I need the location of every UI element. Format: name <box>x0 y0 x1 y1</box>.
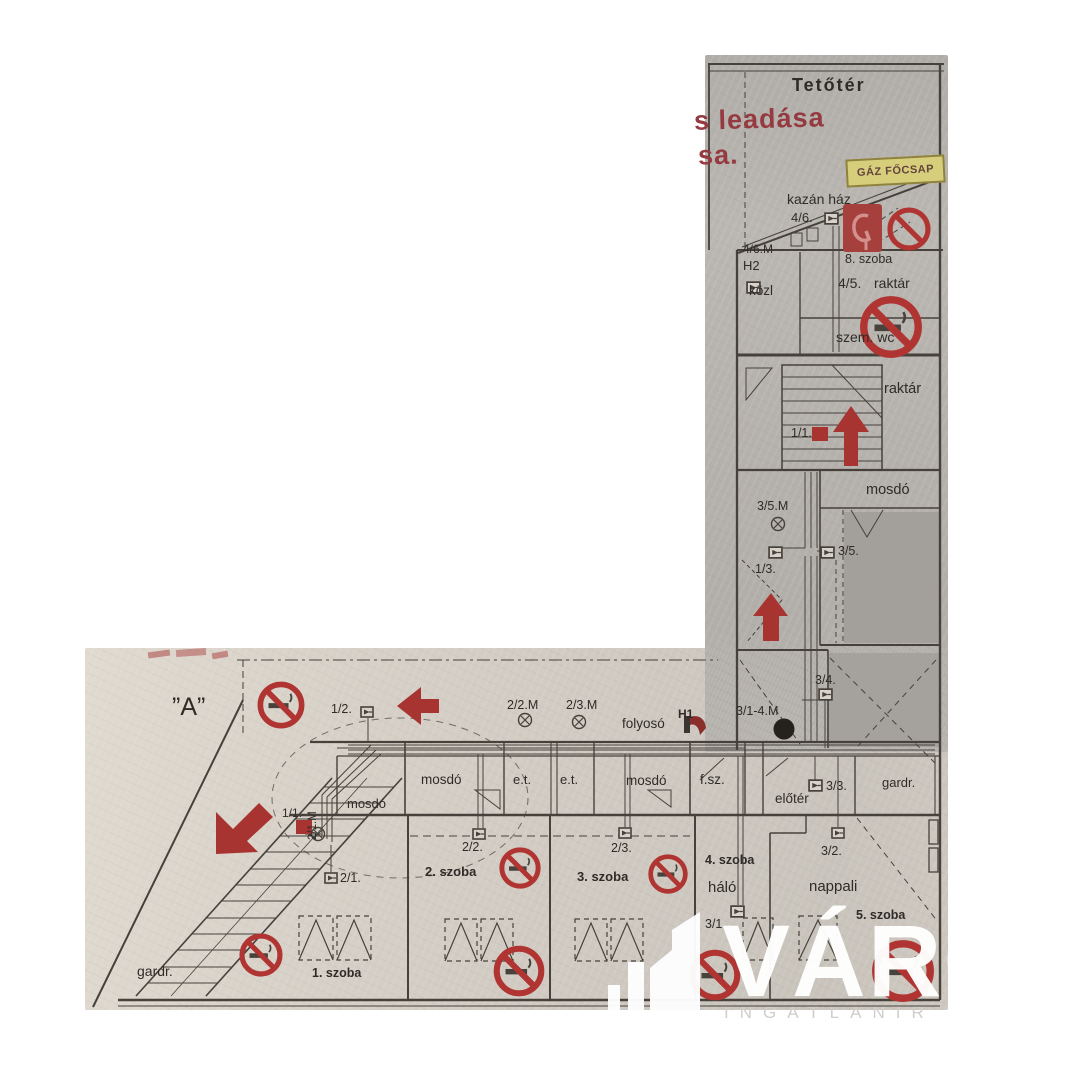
attic-stairs <box>782 365 882 470</box>
valve-icon <box>825 213 838 224</box>
room-label-washroom-attic: mosdó <box>866 483 910 498</box>
valve-label-23: 2/3. <box>611 842 632 855</box>
room-label-washroom-a: mosdó <box>347 797 386 810</box>
room-label-2: 2. szoba <box>425 865 476 878</box>
stamp-fragment <box>148 649 171 658</box>
no-smoking-icon <box>242 936 280 974</box>
stamp-text-line2: sa. <box>698 139 739 171</box>
no-smoking-icon <box>864 300 918 354</box>
label-h2: H2 <box>743 259 760 272</box>
room-label-washroom-b: mosdó <box>421 773 462 787</box>
circle-x-icon <box>573 716 586 729</box>
no-smoking-icon <box>260 684 301 725</box>
valve-icon <box>809 780 822 791</box>
room-label-boiler: kazán ház <box>787 192 851 206</box>
no-smoking-icon <box>502 850 538 886</box>
valve-label-11-attic: 1/1. <box>791 427 812 440</box>
stamp-fragment <box>176 648 206 657</box>
circle-x-icon <box>772 518 785 531</box>
room-label-1: 1. szoba <box>312 967 361 980</box>
valve-label-22: 2/2. <box>462 841 483 854</box>
room-label-wardrobe-r: gardr. <box>882 776 915 789</box>
gas-main-highlight: GÁZ FŐCSAP <box>845 154 945 187</box>
valve-label-21m: 2/1.M <box>308 811 320 840</box>
valve-label-46m: 4/6.M <box>743 243 773 255</box>
arrow-down-left-icon <box>216 803 273 854</box>
valve-icon <box>325 873 337 883</box>
valve-label-22m: 2/2.M <box>507 699 538 712</box>
room-label-storage-b: raktár <box>884 382 921 397</box>
valve-icon <box>619 828 631 838</box>
arrow-up-icon <box>833 406 869 466</box>
valve-label-33: 3/3. <box>826 780 847 793</box>
room-label-et-b: e.t. <box>560 773 578 786</box>
main-valve-icon <box>774 719 795 740</box>
room-label-foyer: előtér <box>775 792 809 806</box>
valve-label-12: 1/2. <box>331 703 352 716</box>
watermark-subtitle: INGATLANIR <box>724 1003 935 1023</box>
room-label-bedroom: háló <box>708 880 736 895</box>
valve-label-314m: 3/1-4.M <box>736 705 778 718</box>
attic-title: Tetőtér <box>792 76 866 94</box>
valve-label-13: 1/3. <box>755 563 776 576</box>
room-label-storage-a: raktár <box>874 276 910 290</box>
room-label-staff-wc: szem. wc <box>836 330 894 344</box>
valve-label-45: 4/5. <box>838 276 861 290</box>
stamp-text-line1: s leadása <box>694 102 825 136</box>
room-label-fsz: f.sz. <box>700 773 725 787</box>
room-label-living: nappali <box>809 879 857 894</box>
gas-meter-icon <box>843 204 882 252</box>
label-h1: H1 <box>678 708 693 720</box>
room-label-corridor: folyosó <box>622 717 665 731</box>
arrow-up-icon <box>753 593 788 641</box>
valve-label-11-ground: 1/1. <box>282 807 302 819</box>
valve-label-21: 2/1. <box>340 872 361 885</box>
gas-main-label: GÁZ FŐCSAP <box>857 163 935 179</box>
valve-icon <box>769 547 782 558</box>
valve-label-23m: 2/3.M <box>566 699 597 712</box>
valve-label-34: 3/4. <box>815 674 836 687</box>
room-label-8: 8. szoba <box>845 253 892 266</box>
valve-label-35: 3/5. <box>838 545 859 558</box>
circle-x-icon <box>519 714 532 727</box>
valve-label-46: 4/6. <box>791 211 813 224</box>
prohibition-icon <box>890 210 928 248</box>
room-label-hall: közl <box>749 284 773 298</box>
valve-icon <box>821 547 834 558</box>
floor-plan-photo: Tetőtér s leadása sa. GÁZ FŐCSAP kazán h… <box>0 0 1080 1080</box>
arrow-left-icon <box>397 687 439 725</box>
red-marks <box>148 406 869 854</box>
valve-icon <box>819 689 832 700</box>
room-label-wardrobe-l: gardr. <box>137 964 173 978</box>
room-label-3: 3. szoba <box>577 870 628 883</box>
stamp-fragment <box>212 651 229 660</box>
valve-label-32: 3/2. <box>821 845 842 858</box>
red-valve-marker <box>812 427 828 441</box>
valve-icon <box>361 707 373 717</box>
room-label-washroom-c: mosdó <box>626 774 667 788</box>
pipe-runs <box>305 226 935 905</box>
section-mark: ”A” <box>172 695 205 720</box>
valve-icon <box>473 829 485 839</box>
valve-icon <box>832 828 844 838</box>
room-label-4: 4. szoba <box>705 854 754 867</box>
no-smoking-icon <box>651 857 686 892</box>
no-smoking-icon <box>497 949 542 994</box>
valve-label-35m: 3/5.M <box>757 500 788 513</box>
room-label-et-a: e.t. <box>513 773 531 786</box>
